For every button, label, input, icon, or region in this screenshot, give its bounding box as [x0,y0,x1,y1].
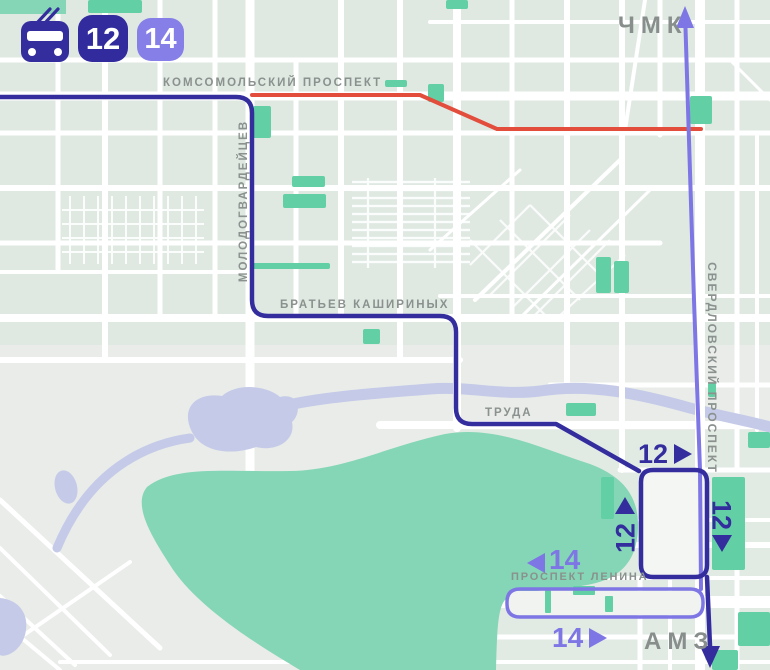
street-label-sverdlovsky: СВЕРДЛОВСКИЙ ПРОСПЕКТ [705,262,719,474]
route-14-marker-lenina-east: 14 [552,624,583,652]
trolleybus-icon [14,4,76,66]
route-12-marker-loop-right: 12 [708,500,735,530]
terminus-chmk: ЧМК [618,12,688,40]
route-14-marker-lenina-west: 14 [549,546,580,574]
arrow-right-icon [674,444,692,464]
terminus-amz: АМЗ [644,628,714,656]
route-12-marker-loop-left: 12 [613,523,640,553]
arrow-down-icon [712,535,732,552]
street-label-komsomolsky: КОМСОМОЛЬСКИЙ ПРОСПЕКТ [163,77,382,89]
arrow-up-icon [615,497,635,514]
arrow-left-icon [527,553,545,573]
street-label-bratyev-kashirinykh: БРАТЬЕВ КАШИРИНЫХ [280,299,449,311]
route-map: 12 14 КОМСОМОЛЬСКИЙ ПРОСПЕКТ МОЛОДОГВАРД… [0,0,770,670]
arrow-right-icon [589,628,607,648]
street-label-truda: ТРУДА [485,407,533,419]
lake [188,387,298,452]
loop-interior [643,472,705,576]
route-14-badge: 14 [137,18,184,61]
street-label-molodogvardeytsev: МОЛОДОГВАРДЕЙЦЕВ [238,120,250,282]
route-12-marker-loop-top: 12 [638,441,668,468]
route-12-badge: 12 [78,15,128,62]
map-canvas [0,0,770,670]
